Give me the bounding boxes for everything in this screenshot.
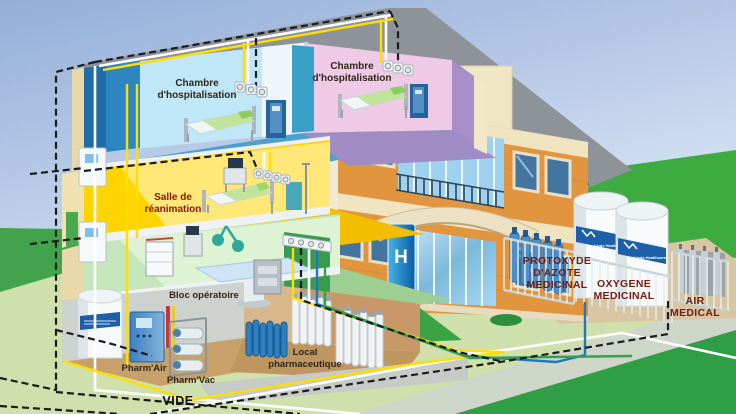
tank-brand-label: Linde Healthcare xyxy=(634,255,667,260)
label-room-hosp-left-1: Chambre xyxy=(175,78,219,89)
label-room-hosp-left-2: d'hospitalisation xyxy=(157,90,236,101)
label-air-1: AIR xyxy=(686,295,705,307)
label-room-hosp-right-1: Chambre xyxy=(330,61,374,72)
icu-equipment xyxy=(286,182,302,210)
vacuum-tank xyxy=(78,289,122,358)
or-cart-white xyxy=(146,238,173,276)
label-icu-2: réanimation xyxy=(145,204,202,215)
label-air-2: MEDICAL xyxy=(670,307,720,319)
label-nitrous-3: MEDICINAL xyxy=(526,279,587,291)
label-pharm-vac: Pharm'Vac xyxy=(167,375,215,386)
label-oxygen-2: MEDICINAL xyxy=(593,290,654,302)
label-operating-room: Bloc opératoire xyxy=(169,290,239,301)
label-nitrous-1: PROTOXYDE xyxy=(523,255,591,267)
hospital-gas-diagram: H xyxy=(0,0,736,414)
label-room-hosp-right-2: d'hospitalisation xyxy=(312,73,391,84)
label-oxygen-1: OXYGENE xyxy=(597,278,651,290)
illustration: H xyxy=(0,0,736,414)
label-pharmacy-1: Local xyxy=(293,347,318,358)
label-pharm-air: Pharm'Air xyxy=(121,363,166,374)
gas-cabinet-left-room xyxy=(266,100,286,138)
hospital-sign-letter: H xyxy=(394,247,408,268)
gas-cabinet-right-room xyxy=(410,84,428,118)
label-icu-1: Salle de xyxy=(154,192,192,203)
bush xyxy=(490,314,522,326)
label-pharmacy-2: pharmaceutique xyxy=(268,359,341,370)
label-nitrous-2: D'AZOTE xyxy=(533,267,581,279)
or-cart-grey xyxy=(254,260,281,294)
label-vacuum: VIDE xyxy=(162,394,193,408)
